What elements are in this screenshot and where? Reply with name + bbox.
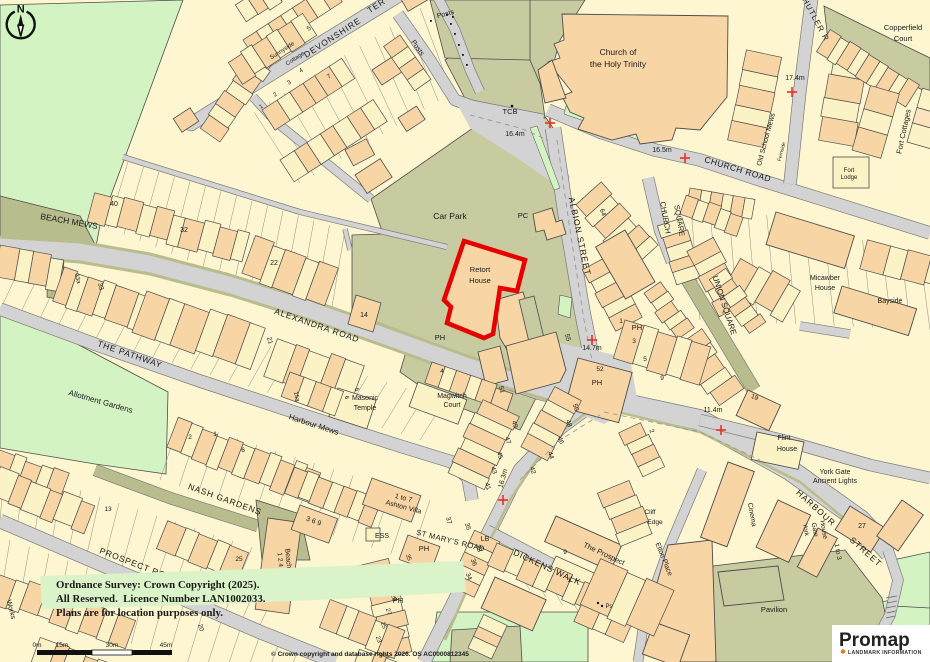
svg-text:9: 9	[563, 549, 567, 556]
svg-text:House: House	[469, 276, 491, 285]
svg-text:6: 6	[241, 447, 245, 454]
svg-text:PH: PH	[632, 323, 642, 332]
svg-text:5: 5	[643, 356, 647, 363]
svg-text:Flint: Flint	[777, 435, 790, 442]
svg-text:16.5m: 16.5m	[652, 147, 672, 154]
svg-text:All Reserved. Licence Number: All Reserved. Licence Number LAN1002033.	[56, 593, 266, 605]
svg-text:1: 1	[213, 431, 217, 438]
svg-text:Copperfield: Copperfield	[884, 23, 922, 32]
svg-text:25: 25	[235, 556, 243, 563]
svg-text:Car Park: Car Park	[433, 211, 467, 221]
svg-text:Pavilion: Pavilion	[761, 605, 787, 614]
svg-text:Micawber: Micawber	[810, 275, 841, 282]
svg-text:Temple: Temple	[354, 405, 377, 412]
svg-text:1: 1	[567, 577, 571, 584]
svg-text:Fort: Fort	[844, 168, 855, 174]
svg-text:32: 32	[180, 227, 188, 234]
svg-text:9: 9	[660, 375, 664, 382]
svg-text:17.4m: 17.4m	[785, 75, 805, 82]
svg-text:52: 52	[596, 366, 604, 373]
svg-text:York Gate: York Gate	[820, 469, 851, 476]
svg-text:N: N	[17, 4, 25, 16]
svg-text:40: 40	[110, 201, 118, 208]
svg-text:Promap: Promap	[839, 630, 910, 651]
svg-text:Ancient Lights: Ancient Lights	[813, 478, 857, 485]
svg-text:Bayside: Bayside	[878, 298, 903, 305]
svg-text:1: 1	[619, 318, 623, 325]
svg-text:16.4m: 16.4m	[505, 131, 525, 138]
svg-text:14: 14	[360, 312, 368, 319]
svg-text:45m: 45m	[160, 642, 173, 649]
svg-text:2: 2	[188, 434, 192, 441]
svg-text:TCB: TCB	[503, 107, 518, 116]
svg-text:3: 3	[632, 338, 636, 345]
svg-text:0m: 0m	[32, 642, 41, 649]
svg-text:LANDMARK INFORMATION: LANDMARK INFORMATION	[848, 650, 922, 656]
svg-text:11.4m: 11.4m	[704, 407, 723, 414]
svg-text:Ps: Ps	[605, 604, 612, 610]
svg-text:Cliff: Cliff	[644, 509, 655, 516]
svg-text:LB: LB	[481, 536, 490, 543]
svg-text:PH: PH	[592, 378, 602, 387]
svg-text:Court: Court	[894, 34, 913, 43]
svg-text:22: 22	[270, 260, 278, 267]
svg-text:30m: 30m	[106, 642, 119, 649]
svg-text:4: 4	[440, 368, 444, 375]
svg-text:ESS: ESS	[375, 533, 389, 540]
svg-text:Ordnance Survey: Crown Copyrig: Ordnance Survey: Crown Copyright (2025).	[56, 579, 260, 591]
svg-text:Edge: Edge	[647, 519, 663, 526]
svg-text:Lodge: Lodge	[841, 175, 858, 181]
svg-text:Court: Court	[443, 402, 460, 409]
svg-text:PH: PH	[419, 544, 429, 553]
svg-text:15m: 15m	[56, 642, 69, 649]
svg-text:PH: PH	[435, 333, 445, 342]
svg-text:Retort: Retort	[470, 265, 491, 274]
svg-text:Church of: Church of	[600, 47, 637, 57]
svg-text:PC: PC	[518, 211, 529, 220]
svg-text:14.7m: 14.7m	[582, 345, 602, 352]
svg-text:27: 27	[858, 523, 866, 530]
svg-text:the Holy Trinity: the Holy Trinity	[590, 59, 647, 69]
svg-text:Plans are for location purpose: Plans are for location purposes only.	[56, 607, 223, 619]
svg-text:13: 13	[104, 506, 112, 513]
svg-text:Magwitch: Magwitch	[437, 393, 467, 400]
svg-text:House: House	[815, 285, 835, 292]
svg-text:House: House	[777, 446, 797, 453]
svg-text:© Crown copyright and database: © Crown copyright and database rights 20…	[271, 650, 469, 658]
svg-text:Masonic: Masonic	[352, 395, 379, 402]
